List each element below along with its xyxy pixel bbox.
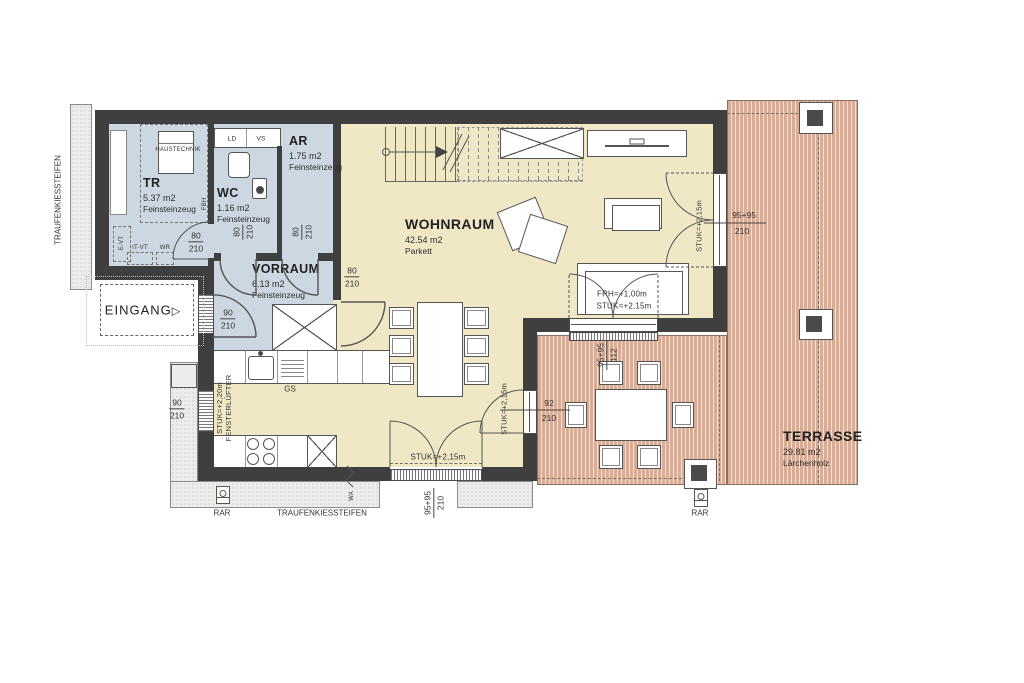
cooktop-burner (247, 453, 259, 465)
rar-symbol-right (694, 489, 708, 507)
wc-washbasin (228, 152, 250, 178)
rar-left-label: RAR (214, 509, 231, 518)
stair-void-marker (500, 128, 584, 159)
entrance-label: EINGANG▷ (105, 303, 181, 318)
e-vt-label: E-VT (119, 236, 125, 250)
gravel-strip-left (70, 104, 92, 290)
terrace-door-frame (523, 390, 537, 434)
shaft-strip (214, 128, 281, 148)
room-label-tr: TR 5.37 m2 Feinsteinzeug (143, 176, 196, 215)
wr-label: WR (160, 245, 170, 251)
floor-plan: EINGANG▷ TR 5.37 m2 Feinsteinzeug WC 1.1… (0, 0, 1024, 683)
terrace-chair (565, 402, 587, 428)
terrace-door-glazing (529, 392, 530, 432)
it-vt-zone (127, 252, 153, 265)
wall-west (95, 110, 109, 280)
french-door-sill (390, 469, 482, 481)
east-window (713, 173, 727, 267)
french-door-dashed (390, 463, 482, 464)
terrace-chair (599, 445, 623, 469)
dim-sofa-window: 95+95 112 (595, 340, 618, 370)
terrace-chair (637, 445, 661, 469)
frh-sofa-annotation: FRH=+1,00m (597, 290, 647, 299)
terrace-post-core (806, 316, 822, 332)
room-label-wohnraum: WOHNRAUM 42.54 m2 Parkett (405, 216, 495, 256)
counter-divider (277, 436, 278, 467)
wall-terrace-vert-lower (523, 434, 537, 470)
traufenkiesstreifen-bottom-label: TRAUFENKIESSTEIFEN (277, 509, 367, 518)
tr-window-niche (110, 130, 127, 215)
cooktop-burner (247, 438, 259, 450)
wall-south-kitchen (198, 467, 390, 481)
dining-chair (389, 335, 414, 357)
terrace-table (595, 389, 667, 441)
kitchen-faucet (258, 351, 263, 356)
room-label-ar: AR 1.75 m2 Feinsteinzeug (289, 134, 342, 173)
gravel-strip-bottom-right (457, 481, 533, 508)
staircase-treads (385, 127, 457, 182)
rar-symbol-left (216, 486, 230, 504)
terrace-chair (637, 361, 661, 385)
dining-chair (464, 307, 489, 329)
wall-north (95, 110, 727, 124)
dining-chair (389, 307, 414, 329)
gs-label: GS (284, 385, 296, 394)
terrace-boundary-dashed-bottom (537, 478, 687, 479)
wall-entry-low (198, 432, 214, 468)
dim-ar-door: 80 210 (290, 224, 313, 239)
dim-entry-door: 90 210 (220, 307, 235, 330)
room-label-terrasse: TERRASSE 29.81 m2 Lärchenholz (783, 428, 862, 468)
wall-wc-ar (277, 146, 282, 253)
left-window-sill (198, 390, 214, 432)
fensterluefter-annotation: STUK=+2,20m FENSTERLÜFTER (215, 375, 233, 442)
counter-divider (277, 351, 278, 383)
dining-chair (464, 335, 489, 357)
traufenkiesstreifen-left-label: TRAUFENKIESSTEIFEN (54, 155, 63, 245)
stuk-sofa-annotation: STUK=+2,15m (596, 302, 651, 311)
sideboard (587, 130, 687, 157)
ld-label: LD (228, 136, 237, 143)
room-label-vorraum: VORRAUM 6.13 m2 Feinsteinzeug (252, 262, 319, 301)
it-vt-label: IT-VT (132, 245, 148, 251)
wall-tr-east (208, 124, 214, 224)
terrace-chair (672, 402, 694, 428)
dishwasher-lines (281, 360, 304, 377)
wr-zone (156, 252, 174, 265)
dim-wc-door: 80 210 (231, 224, 254, 239)
tall-cabinet-marker (272, 304, 337, 351)
dining-table (417, 302, 463, 397)
stuk-terrace-door-annotation: STUK=+2,15m (500, 383, 509, 435)
counter-divider (245, 436, 246, 467)
wall-east-bottom (713, 267, 727, 332)
counter-divider (245, 351, 246, 383)
vs-label: VS (256, 136, 265, 143)
wall-east-top (713, 110, 727, 173)
terrace-boundary-dashed-inner (719, 335, 720, 481)
dim-east-window-den: 210 (735, 226, 749, 236)
dim-terrace-door-den: 210 (542, 413, 556, 423)
wall-wcar-south-a (214, 253, 221, 261)
haustechnik-unit-line (159, 143, 193, 144)
counter-divider (307, 351, 308, 383)
sofa-window-glazing (571, 324, 656, 325)
counter-divider (362, 351, 363, 383)
gravel-pad (171, 364, 197, 388)
kitchen-appliance-marker (307, 435, 337, 468)
terrace-post-core (807, 110, 823, 126)
stuk-east-window-annotation: STUK=+2,15m (695, 200, 704, 252)
stuk-french-annotation: STUK=+2,15m (410, 453, 465, 462)
cooktop-burner (263, 453, 275, 465)
terrace-boundary-dashed-right (818, 102, 819, 483)
wall-wcar-south-b (256, 253, 282, 261)
rar-right-label: RAR (692, 509, 709, 518)
fbh-label: FBH (202, 198, 208, 211)
dining-chair (464, 363, 489, 385)
cooktop-burner (263, 438, 275, 450)
wall-living-south-a (523, 318, 569, 332)
haustechnik-label: HAUSTECHNIK (155, 147, 200, 153)
terrace-post-core (691, 465, 707, 481)
dim-left-window: 90 210 (169, 397, 184, 420)
shaft-divider (246, 129, 247, 147)
counter-divider (337, 351, 338, 383)
dim-terrace-door-num: 92 (544, 398, 553, 408)
kitchen-sink (248, 356, 274, 380)
room-label-wc: WC 1.16 m2 Feinsteinzeug (217, 186, 270, 225)
entrance-label-text: EINGANG (105, 303, 172, 318)
eingang-arrow-icon: ▷ (172, 306, 181, 318)
sofa-window (569, 318, 658, 332)
dim-vorraum-door: 80 210 (344, 265, 359, 288)
coffee-table-top (612, 205, 660, 231)
east-window-glazing (719, 175, 720, 265)
wa-label: WA (349, 491, 355, 501)
dim-tr-door: 80 210 (188, 230, 203, 253)
terrace-boundary-dashed-top (727, 113, 803, 114)
dining-chair (389, 363, 414, 385)
dim-french-door: 95+95 210 (422, 488, 445, 518)
dim-east-window-num: 95+95 (732, 210, 756, 220)
